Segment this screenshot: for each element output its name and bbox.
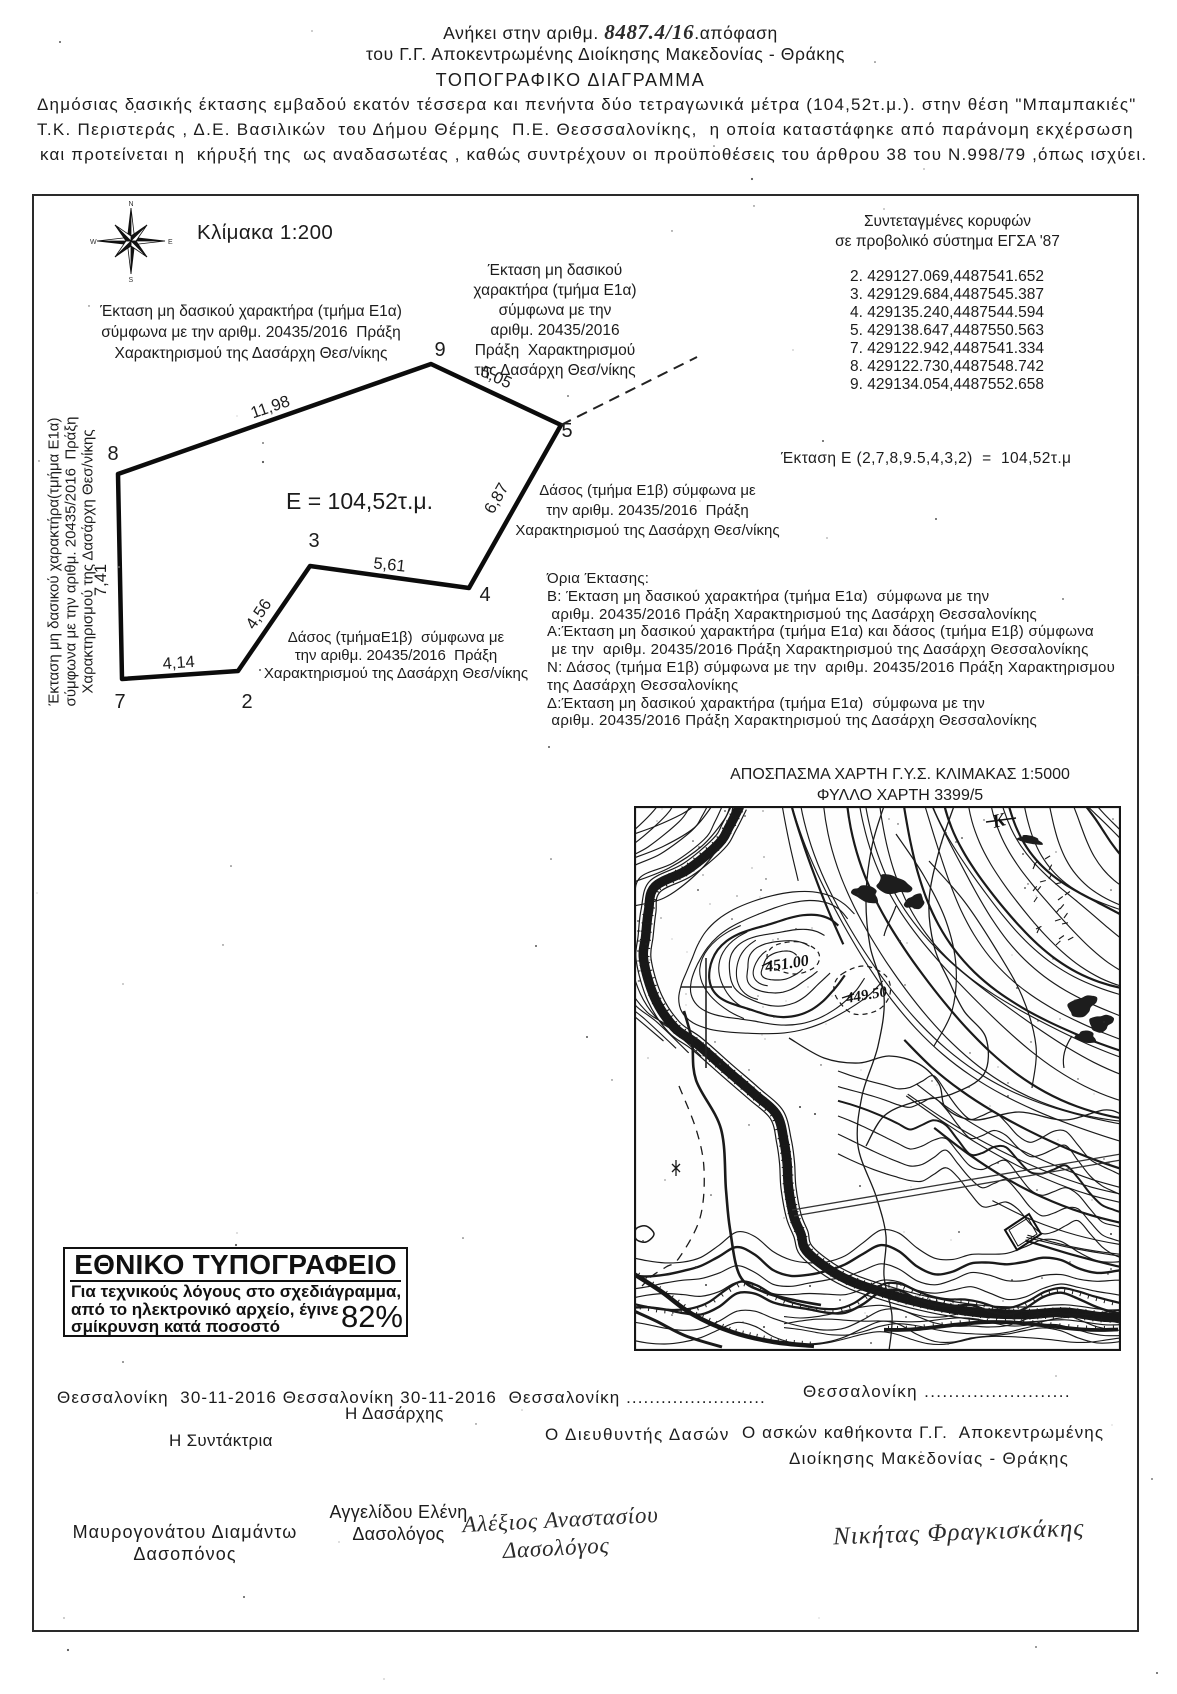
svg-text:9: 9 xyxy=(434,339,445,361)
svg-text:8: 8 xyxy=(107,443,118,465)
svg-text:7: 7 xyxy=(114,691,125,713)
svg-text:7,41: 7,41 xyxy=(92,564,110,596)
svg-text:11,98: 11,98 xyxy=(248,392,292,422)
svg-text:3: 3 xyxy=(308,530,319,552)
svg-text:6,87: 6,87 xyxy=(481,480,513,517)
svg-text:5: 5 xyxy=(561,420,572,442)
svg-text:4,14: 4,14 xyxy=(162,653,195,673)
svg-text:2: 2 xyxy=(241,691,252,713)
svg-text:4: 4 xyxy=(479,584,490,606)
svg-text:5,61: 5,61 xyxy=(373,554,407,575)
